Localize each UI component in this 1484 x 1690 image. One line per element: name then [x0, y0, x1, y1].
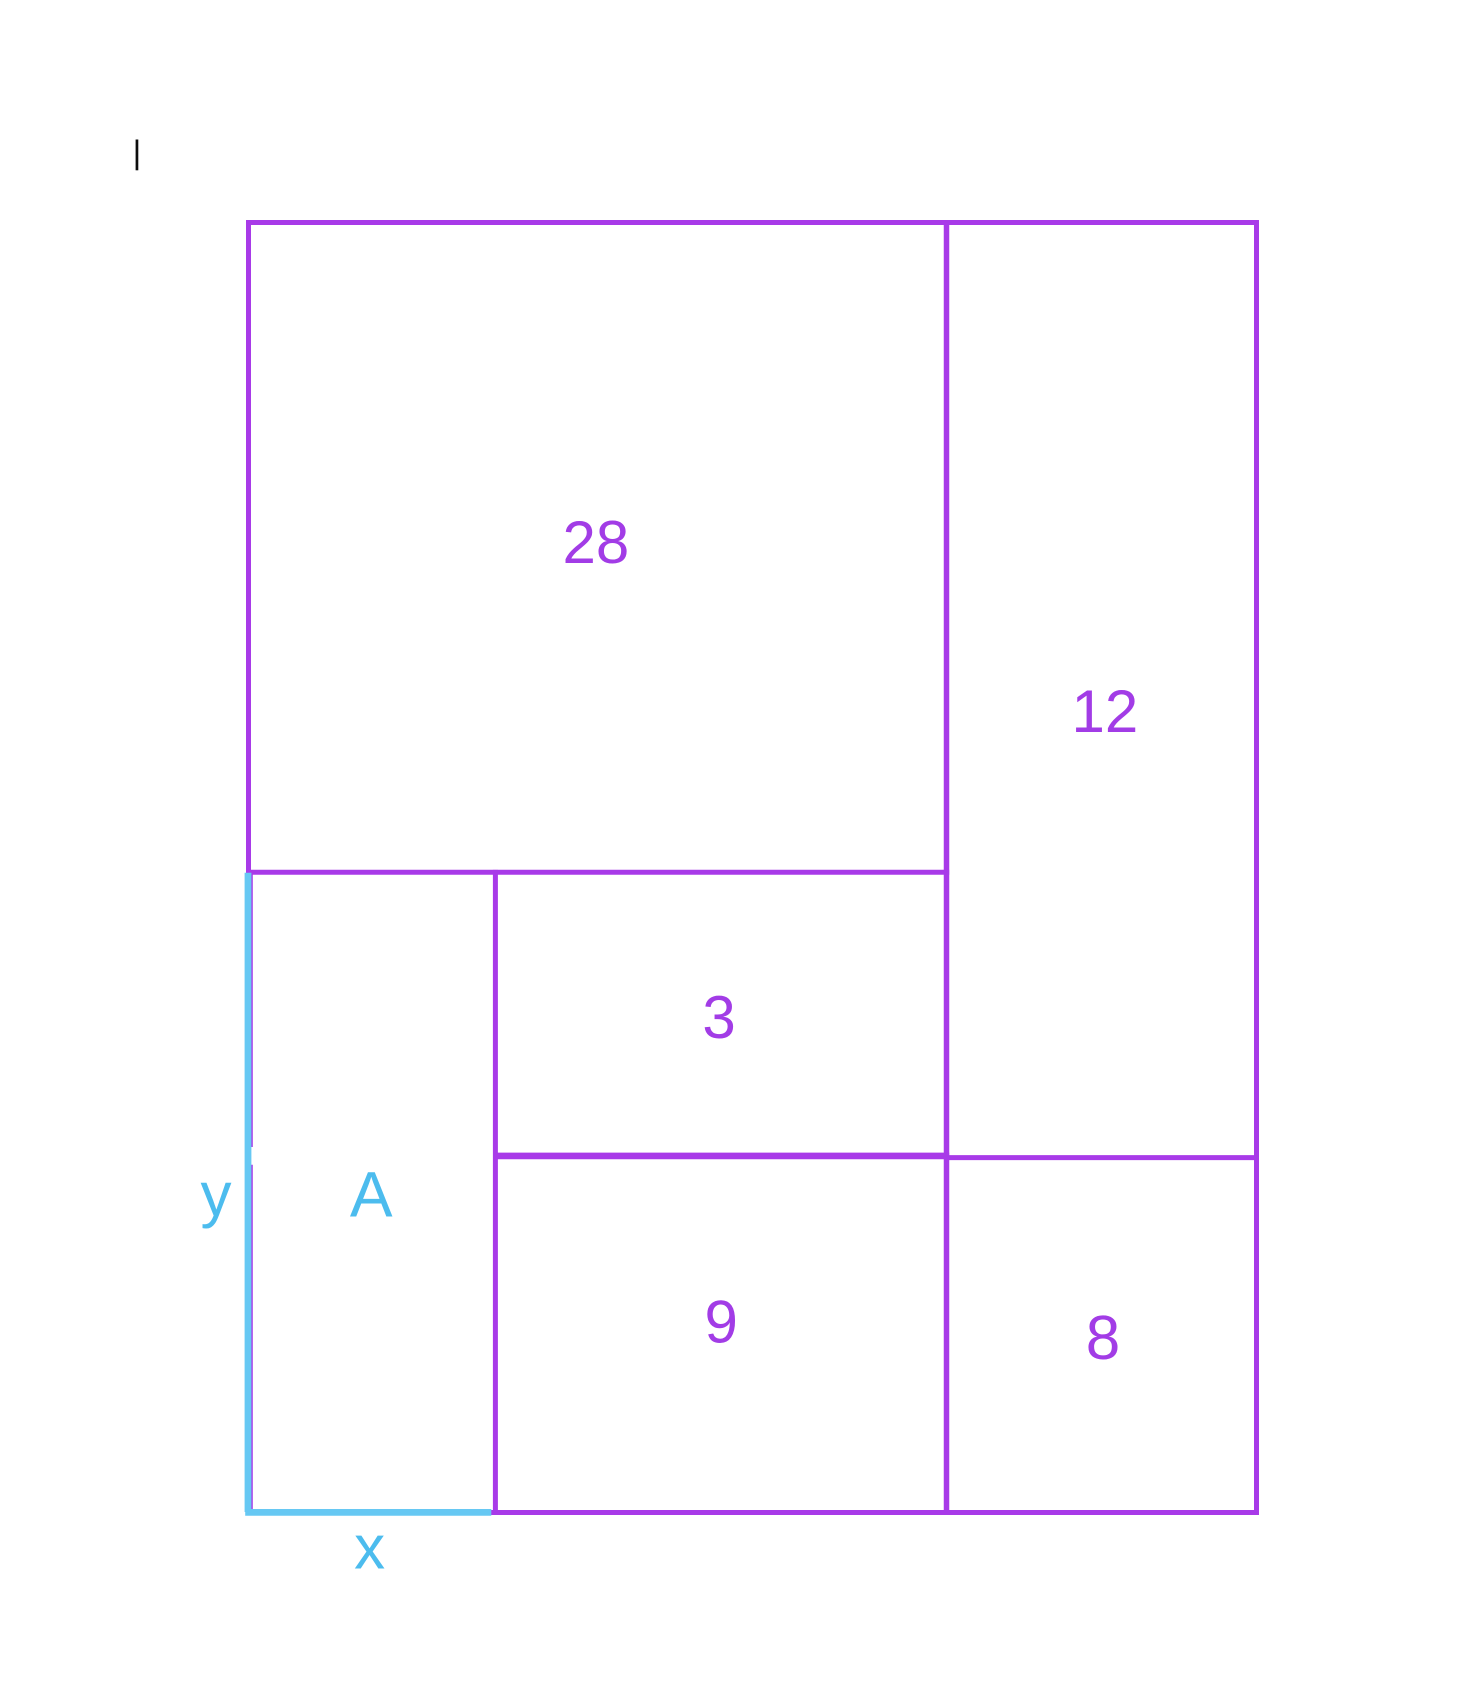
svg-text:9: 9	[705, 1288, 738, 1355]
svg-text:12: 12	[1072, 678, 1139, 745]
svg-text:8: 8	[1086, 1304, 1120, 1373]
svg-text:28: 28	[563, 509, 630, 576]
svg-text:3: 3	[702, 984, 735, 1051]
svg-text:y: y	[201, 1161, 232, 1230]
svg-text:x: x	[354, 1514, 385, 1583]
svg-text:A: A	[350, 1158, 393, 1230]
